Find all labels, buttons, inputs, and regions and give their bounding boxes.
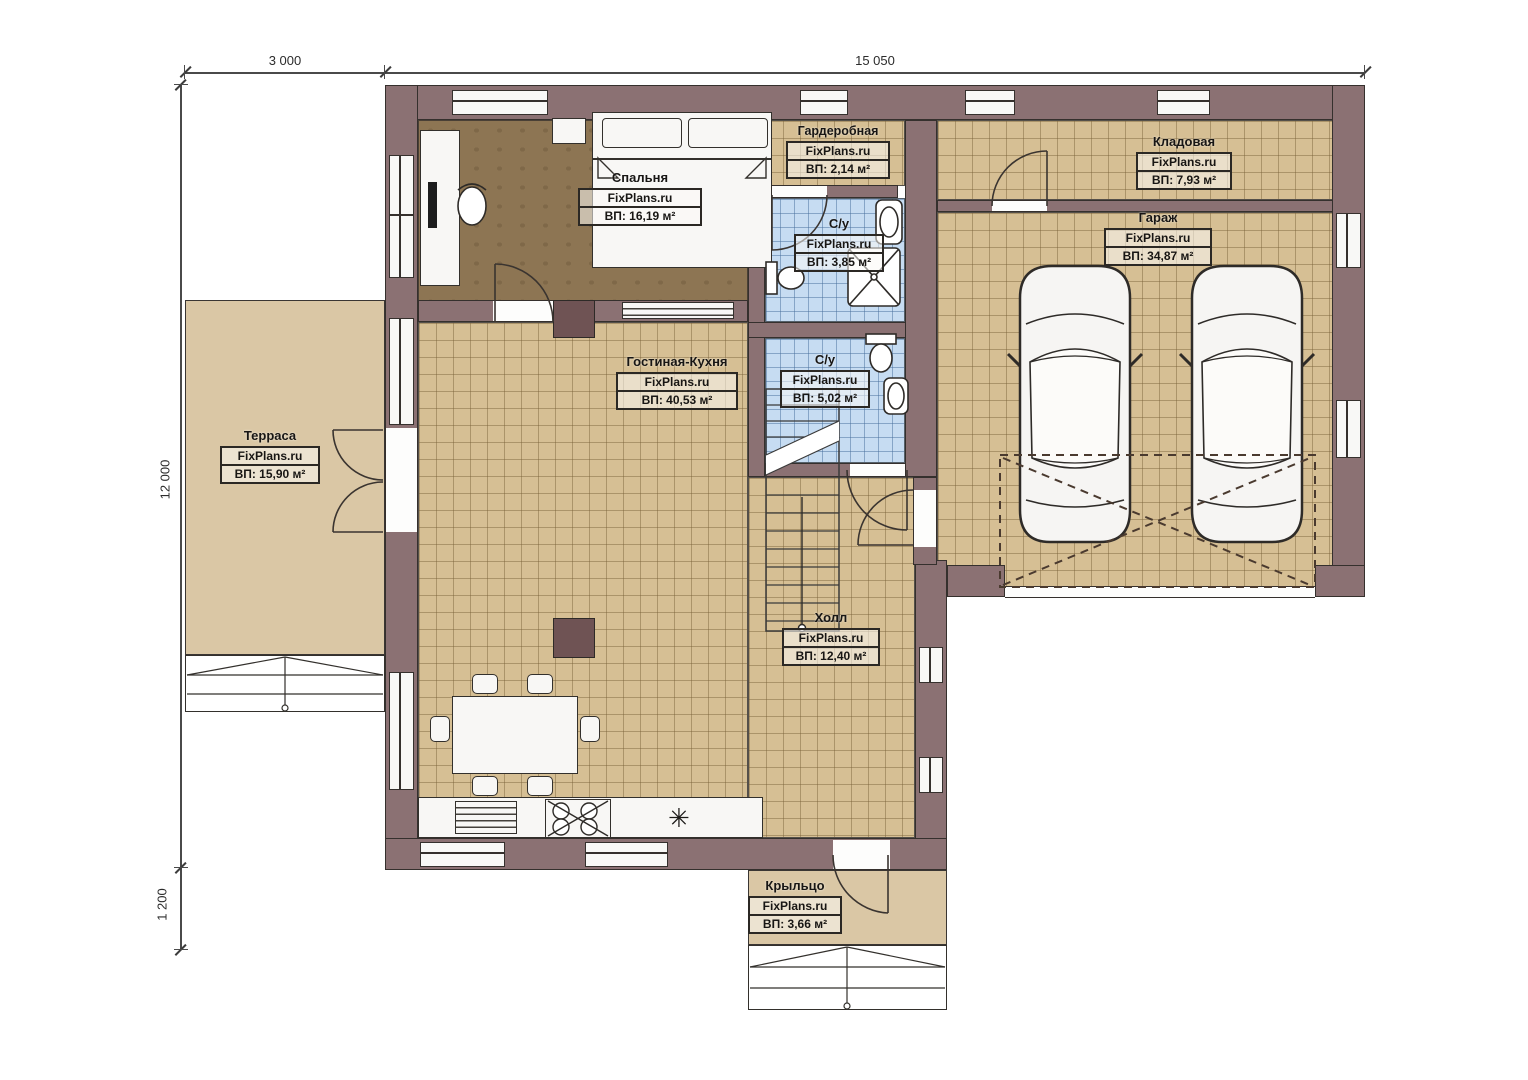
- room-area: ВП: 3,85 м²: [796, 252, 882, 270]
- room-name: Кладовая: [1136, 134, 1232, 149]
- storage-door-opening: [992, 201, 1047, 211]
- window-wardrobe-top: [800, 90, 848, 115]
- window-living-left-1: [389, 318, 414, 425]
- room-area: ВП: 12,40 м²: [784, 646, 878, 664]
- watermark-text: FixPlans.ru: [580, 190, 700, 206]
- window-kitchen-bottom-1: [420, 842, 505, 867]
- room-label-bathroom1: С/у FixPlans.ru ВП: 3,85 м²: [794, 216, 884, 272]
- watermark-text: FixPlans.ru: [1138, 154, 1230, 170]
- room-area: ВП: 40,53 м²: [618, 390, 736, 408]
- label-box: FixPlans.ru ВП: 3,85 м²: [794, 234, 884, 272]
- window-hall-east-1: [919, 647, 943, 683]
- chair: [430, 716, 450, 742]
- dim-house-height: 12 000: [158, 435, 173, 525]
- nightstand: [552, 118, 586, 144]
- window-garage-right-1: [1336, 213, 1361, 268]
- dim-endmark: [184, 65, 185, 79]
- dim-endmark: [174, 867, 188, 868]
- bed-pillow-right: [688, 118, 768, 148]
- bath1-door-opening: [772, 186, 827, 197]
- room-name: Крыльцо: [748, 878, 842, 893]
- wall-garage-bottom-left: [947, 565, 1005, 597]
- watermark-text: FixPlans.ru: [782, 372, 868, 388]
- room-label-storage: Кладовая FixPlans.ru ВП: 7,93 м²: [1136, 134, 1232, 190]
- room-area: ВП: 15,90 м²: [222, 464, 318, 482]
- chair: [472, 674, 498, 694]
- dim-house-width: 15 050: [820, 53, 930, 68]
- wall-right: [1332, 85, 1365, 597]
- room-label-hall: Холл FixPlans.ru ВП: 12,40 м²: [782, 610, 880, 666]
- chair: [527, 674, 553, 694]
- dimension-line-top: [185, 72, 1365, 74]
- watermark-text: FixPlans.ru: [222, 448, 318, 464]
- wall-hall-east: [915, 560, 947, 870]
- bed-blanket-line: [592, 158, 772, 160]
- dining-table: [452, 696, 578, 774]
- room-name: Гараж: [1104, 210, 1212, 225]
- desk: [420, 130, 460, 286]
- room-area: ВП: 3,66 м²: [750, 914, 840, 932]
- room-area: ВП: 7,93 м²: [1138, 170, 1230, 188]
- room-label-bedroom: Спальня FixPlans.ru ВП: 16,19 м²: [578, 170, 702, 226]
- room-name: Спальня: [578, 170, 702, 185]
- hall-garage-door-opening: [914, 490, 936, 547]
- dim-endmark: [174, 84, 188, 85]
- window-bedroom-top: [452, 90, 548, 115]
- room-label-garage: Гараж FixPlans.ru ВП: 34,87 м²: [1104, 210, 1212, 266]
- watermark-text: FixPlans.ru: [784, 630, 878, 646]
- room-name: С/у: [794, 216, 884, 231]
- window-storage-top-1: [965, 90, 1015, 115]
- room-name: Холл: [782, 610, 880, 625]
- window-kitchen-bottom-2: [585, 842, 668, 867]
- monitor: [428, 182, 437, 228]
- room-name: Терраса: [220, 428, 320, 443]
- bedroom-door-opening: [493, 301, 553, 321]
- stove: [545, 799, 611, 838]
- room-area: ВП: 34,87 м²: [1106, 246, 1210, 264]
- room-label-terrace: Терраса FixPlans.ru ВП: 15,90 м²: [220, 428, 320, 484]
- room-label-porch: Крыльцо FixPlans.ru ВП: 3,66 м²: [748, 878, 842, 934]
- label-box: FixPlans.ru ВП: 40,53 м²: [616, 372, 738, 410]
- watermark-text: FixPlans.ru: [796, 236, 882, 252]
- dim-endmark: [384, 65, 385, 79]
- label-box: FixPlans.ru ВП: 5,02 м²: [780, 370, 870, 408]
- terrace-door-opening: [386, 428, 417, 532]
- chimney-block-2: [553, 618, 595, 658]
- dim-endmark: [1364, 65, 1365, 79]
- label-box: FixPlans.ru ВП: 12,40 м²: [782, 628, 880, 666]
- watermark-text: FixPlans.ru: [750, 898, 840, 914]
- wall-bath1-bath2: [748, 322, 913, 338]
- bed-pillow-left: [602, 118, 682, 148]
- room-area: ВП: 2,14 м²: [788, 159, 888, 177]
- room-name: Гардеробная: [786, 124, 890, 138]
- wall-garage-bottom-right: [1315, 565, 1365, 597]
- garage-gate-threshold: [1005, 586, 1315, 598]
- window-bedroom-left-1: [389, 155, 414, 215]
- window-bedroom-left-2: [389, 215, 414, 278]
- watermark-text: FixPlans.ru: [788, 143, 888, 159]
- label-box: FixPlans.ru ВП: 15,90 м²: [220, 446, 320, 484]
- window-living-left-2: [389, 672, 414, 790]
- entry-door-opening: [833, 840, 890, 869]
- terrace-steps: [185, 655, 385, 712]
- garage-floor: [937, 212, 1333, 590]
- dim-terrace-width: 3 000: [235, 53, 335, 68]
- porch-steps: [748, 945, 947, 1010]
- label-box: FixPlans.ru ВП: 16,19 м²: [578, 188, 702, 226]
- bath2-door-opening: [850, 464, 905, 476]
- room-label-living-kitchen: Гостиная-Кухня FixPlans.ru ВП: 40,53 м²: [616, 354, 738, 410]
- dim-porch-height: 1 200: [155, 870, 170, 940]
- label-box: FixPlans.ru ВП: 34,87 м²: [1104, 228, 1212, 266]
- room-area: ВП: 16,19 м²: [580, 206, 700, 224]
- floor-plan: ✳ 3 000: [0, 0, 1528, 1080]
- bedroom-bench: [622, 302, 734, 319]
- room-label-wardrobe: Гардеробная FixPlans.ru ВП: 2,14 м²: [786, 124, 890, 179]
- fridge: [455, 801, 517, 834]
- watermark-text: FixPlans.ru: [1106, 230, 1210, 246]
- window-garage-right-2: [1336, 400, 1361, 458]
- room-label-bathroom2: С/у FixPlans.ru ВП: 5,02 м²: [780, 352, 870, 408]
- chimney-block-1: [553, 300, 595, 338]
- label-box: FixPlans.ru ВП: 3,66 м²: [748, 896, 842, 934]
- window-hall-east-2: [919, 757, 943, 793]
- label-box: FixPlans.ru ВП: 2,14 м²: [786, 141, 890, 179]
- wall-bathblock-east: [905, 120, 937, 477]
- storage-floor: [937, 120, 1333, 200]
- chair: [527, 776, 553, 796]
- label-box: FixPlans.ru ВП: 7,93 м²: [1136, 152, 1232, 190]
- room-name: Гостиная-Кухня: [616, 354, 738, 369]
- room-name: С/у: [780, 352, 870, 367]
- dim-endmark: [174, 949, 188, 950]
- window-storage-top-2: [1157, 90, 1210, 115]
- watermark-text: FixPlans.ru: [618, 374, 736, 390]
- room-area: ВП: 5,02 м²: [782, 388, 868, 406]
- dimension-line-left: [180, 85, 182, 950]
- chair: [580, 716, 600, 742]
- chair: [472, 776, 498, 796]
